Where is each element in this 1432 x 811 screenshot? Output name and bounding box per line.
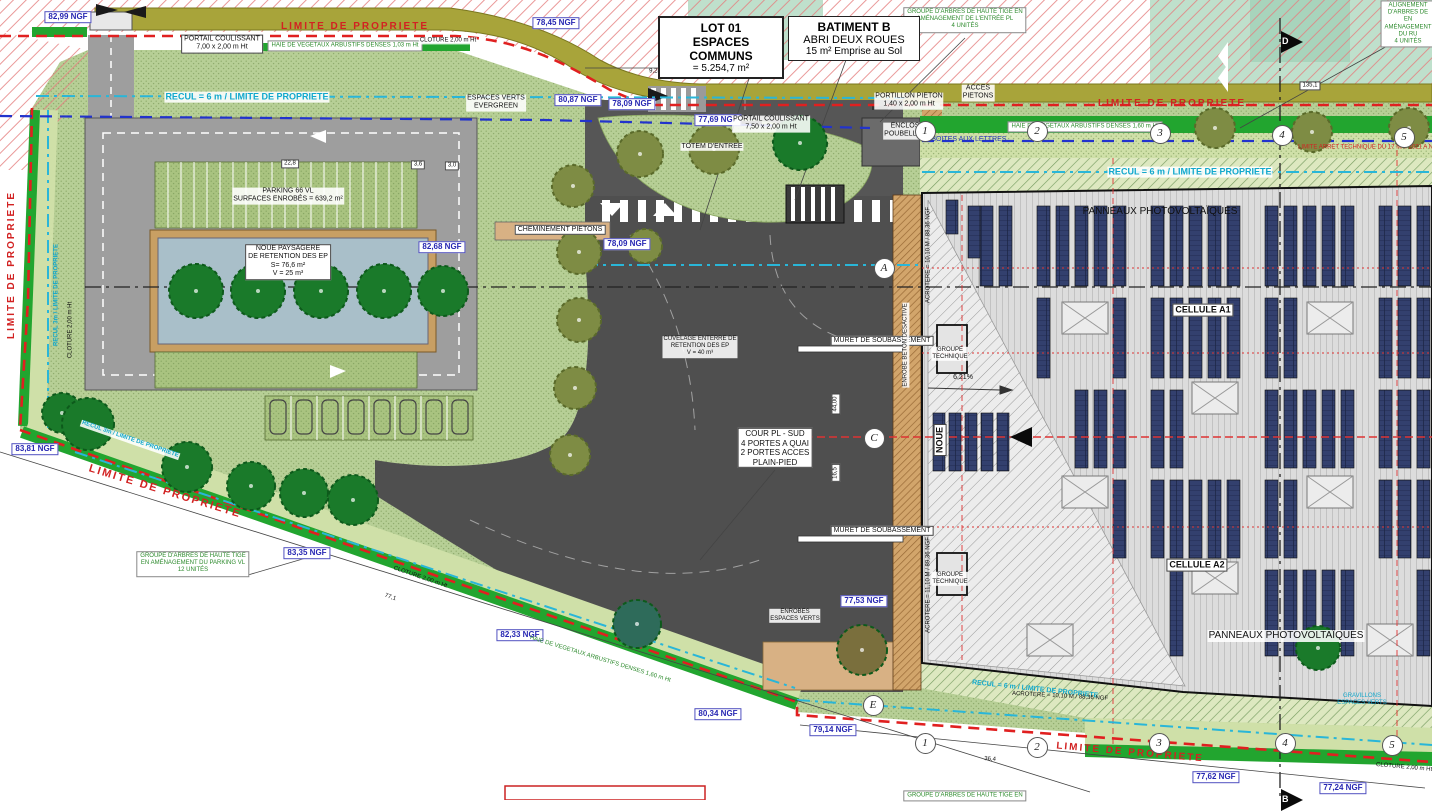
skylight (1062, 476, 1108, 508)
skylight (1062, 302, 1108, 334)
site-plan-page: { "colors": { "grass": "#b7cf96", "hedge… (0, 0, 1432, 800)
skylight (1307, 302, 1353, 334)
batiment-line2: ABRI DEUX ROUES (793, 34, 915, 46)
batiment-line3: 15 m² Emprise au Sol (793, 46, 915, 57)
parking-lot (85, 118, 477, 390)
batiment-line1: BATIMENT B (793, 20, 915, 34)
lot01-line3: = 5.254,7 m² (664, 63, 778, 74)
hedge-top-right (920, 116, 1432, 195)
car-stalls (265, 396, 473, 440)
screen-fence (786, 185, 844, 223)
lot01-title-box: LOT 01 ESPACES COMMUNS = 5.254,7 m² (658, 16, 784, 79)
skylight (1192, 382, 1238, 414)
lot01-line1: LOT 01 (664, 21, 778, 35)
skylight (1027, 624, 1073, 656)
skylight (1307, 476, 1353, 508)
cut-off-red-box (505, 786, 705, 800)
trash-enclosure (862, 118, 920, 166)
skylight (1192, 562, 1238, 594)
batiment-b-title-box: BATIMENT B ABRI DEUX ROUES 15 m² Emprise… (788, 16, 920, 61)
skylight (1367, 624, 1413, 656)
building-roof (922, 186, 1432, 708)
site-plan-drawing (0, 0, 1432, 800)
lot01-line2: ESPACES COMMUNS (664, 35, 778, 63)
